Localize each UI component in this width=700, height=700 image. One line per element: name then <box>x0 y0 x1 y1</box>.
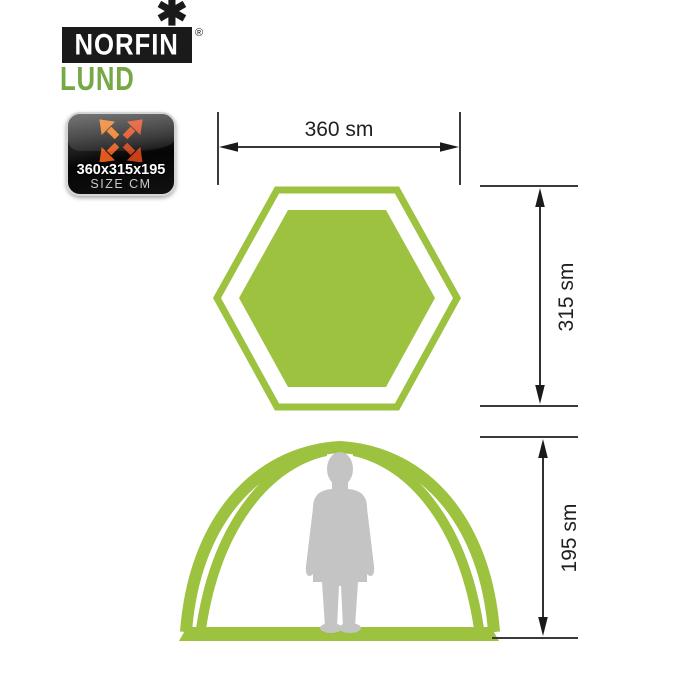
tent-diagram <box>0 0 700 700</box>
person-foot-left <box>320 623 342 633</box>
person-torso <box>312 489 368 562</box>
width-arrowhead-left <box>219 142 238 152</box>
height-arrowhead-top <box>538 439 548 458</box>
floor-hexagon-fill <box>239 210 435 387</box>
depth-dimension-label: 315 sm <box>554 227 580 367</box>
depth-arrowhead-bottom <box>535 385 545 404</box>
height-dimension-label: 195 sm <box>557 468 583 608</box>
depth-arrowhead-top <box>535 188 545 207</box>
registered-trademark: ® <box>195 27 203 39</box>
person-legs <box>313 556 367 627</box>
width-dimension-label: 360 sm <box>269 117 409 143</box>
person-foot-right <box>339 623 361 633</box>
snowflake-icon: ✱ <box>156 0 188 32</box>
product-diagram-page: ✱ NORFIN ® LUND <box>0 0 700 700</box>
width-arrowhead-right <box>440 142 459 152</box>
height-arrowhead-bottom <box>538 617 548 636</box>
person-silhouette <box>306 452 374 633</box>
